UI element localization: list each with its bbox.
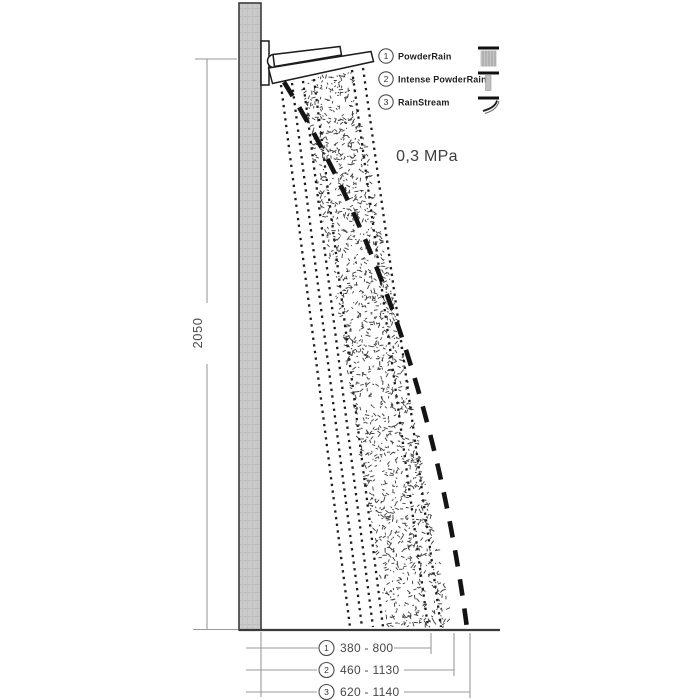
legend-item-label: PowderRain — [398, 52, 452, 62]
shower-spray-diagram: 2050 1 PowderRain 2 Intense PowderRain — [0, 0, 700, 700]
legend-item-number: 2 — [384, 74, 389, 84]
range-label: 620 - 1140 — [340, 685, 400, 699]
height-dimension-label: 2050 — [190, 318, 205, 349]
floor-range-row: 3 620 - 1140 — [246, 685, 470, 700]
spray-diagram-page: 2050 1 PowderRain 2 Intense PowderRain — [0, 0, 700, 700]
range-number: 2 — [324, 665, 329, 675]
legend-item-label: Intense PowderRain — [398, 75, 487, 85]
legend-item-number: 1 — [384, 51, 389, 61]
legend-item: 1 PowderRain — [379, 47, 499, 67]
stream-curve-icon — [478, 97, 499, 114]
range-label: 380 - 800 — [340, 641, 393, 655]
wall — [239, 3, 261, 630]
shower-head — [261, 41, 374, 85]
range-label: 460 - 1130 — [340, 663, 400, 677]
powderrain-spray-line — [303, 81, 373, 627]
height-dimension: 2050 — [190, 59, 238, 630]
wide-spray-icon — [478, 47, 499, 67]
pressure-label: 0,3 MPa — [396, 148, 458, 165]
range-number: 1 — [324, 643, 329, 653]
legend-item-label: RainStream — [398, 98, 450, 108]
floor-range-row: 2 460 - 1130 — [246, 663, 454, 678]
legend-item: 3 RainStream — [379, 95, 499, 114]
legend-item: 2 Intense PowderRain — [379, 72, 499, 91]
floor-range-dimensions: 1 380 - 800 2 460 - 1130 3 620 - 1140 — [246, 632, 470, 700]
floor-range-row: 1 380 - 800 — [246, 641, 431, 656]
range-number: 3 — [324, 687, 329, 697]
legend: 1 PowderRain 2 Intense PowderRain 3 Rain… — [379, 47, 499, 114]
legend-item-number: 3 — [384, 97, 389, 107]
powderrain-spray-line — [314, 79, 383, 627]
